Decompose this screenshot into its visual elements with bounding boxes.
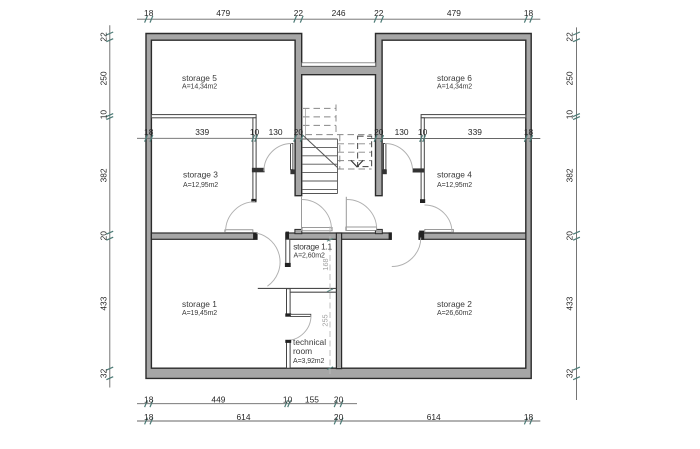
svg-text:room: room xyxy=(293,346,312,356)
svg-text:433: 433 xyxy=(98,296,108,310)
svg-text:20: 20 xyxy=(294,127,304,137)
svg-text:32: 32 xyxy=(564,368,574,378)
svg-text:18: 18 xyxy=(144,394,154,404)
svg-text:20: 20 xyxy=(334,394,344,404)
svg-text:A=12,95m2: A=12,95m2 xyxy=(183,182,218,189)
svg-text:20: 20 xyxy=(374,127,384,137)
svg-text:382: 382 xyxy=(98,168,108,182)
svg-text:250: 250 xyxy=(564,71,574,85)
svg-text:storage 3: storage 3 xyxy=(183,170,218,180)
svg-text:A=14,34m2: A=14,34m2 xyxy=(182,84,217,91)
svg-text:18: 18 xyxy=(524,8,534,18)
svg-text:20: 20 xyxy=(334,412,344,422)
svg-text:storage 1: storage 1 xyxy=(182,299,217,309)
svg-text:449: 449 xyxy=(211,394,225,404)
svg-text:339: 339 xyxy=(195,127,209,137)
svg-text:246: 246 xyxy=(332,8,346,18)
svg-text:storage 5: storage 5 xyxy=(182,73,217,83)
svg-text:155: 155 xyxy=(305,394,319,404)
svg-text:A=2,60m2: A=2,60m2 xyxy=(294,252,326,259)
svg-text:130: 130 xyxy=(395,127,409,137)
svg-text:22: 22 xyxy=(374,8,384,18)
svg-text:382: 382 xyxy=(564,168,574,182)
svg-text:614: 614 xyxy=(237,412,251,422)
svg-text:18: 18 xyxy=(524,412,534,422)
svg-text:storage 1.1: storage 1.1 xyxy=(293,242,332,252)
svg-text:10: 10 xyxy=(250,127,260,137)
svg-text:168: 168 xyxy=(321,258,330,270)
svg-text:A=14,34m2: A=14,34m2 xyxy=(437,84,472,91)
svg-text:479: 479 xyxy=(447,8,461,18)
svg-text:A=12,95m2: A=12,95m2 xyxy=(437,182,472,189)
svg-text:614: 614 xyxy=(427,412,441,422)
svg-text:18: 18 xyxy=(144,8,154,18)
svg-text:22: 22 xyxy=(98,32,108,42)
svg-text:32: 32 xyxy=(98,368,108,378)
svg-text:18: 18 xyxy=(524,127,534,137)
svg-text:130: 130 xyxy=(269,127,283,137)
svg-text:250: 250 xyxy=(98,71,108,85)
svg-text:22: 22 xyxy=(294,8,304,18)
svg-text:A=26,60m2: A=26,60m2 xyxy=(437,310,472,317)
svg-text:storage 2: storage 2 xyxy=(437,299,472,309)
svg-text:10: 10 xyxy=(418,127,428,137)
svg-text:A=19,45m2: A=19,45m2 xyxy=(182,310,217,317)
svg-text:18: 18 xyxy=(144,127,154,137)
svg-text:255: 255 xyxy=(320,314,329,326)
svg-text:22: 22 xyxy=(564,32,574,42)
svg-text:10: 10 xyxy=(564,110,574,120)
svg-text:339: 339 xyxy=(468,127,482,137)
svg-text:A=3,92m2: A=3,92m2 xyxy=(293,358,325,365)
svg-text:20: 20 xyxy=(98,231,108,241)
svg-text:10: 10 xyxy=(283,394,293,404)
svg-text:storage 6: storage 6 xyxy=(437,73,472,83)
svg-text:20: 20 xyxy=(564,231,574,241)
svg-text:10: 10 xyxy=(98,110,108,120)
svg-text:479: 479 xyxy=(216,8,230,18)
svg-text:433: 433 xyxy=(564,296,574,310)
svg-text:18: 18 xyxy=(144,412,154,422)
svg-text:storage 4: storage 4 xyxy=(437,170,472,180)
